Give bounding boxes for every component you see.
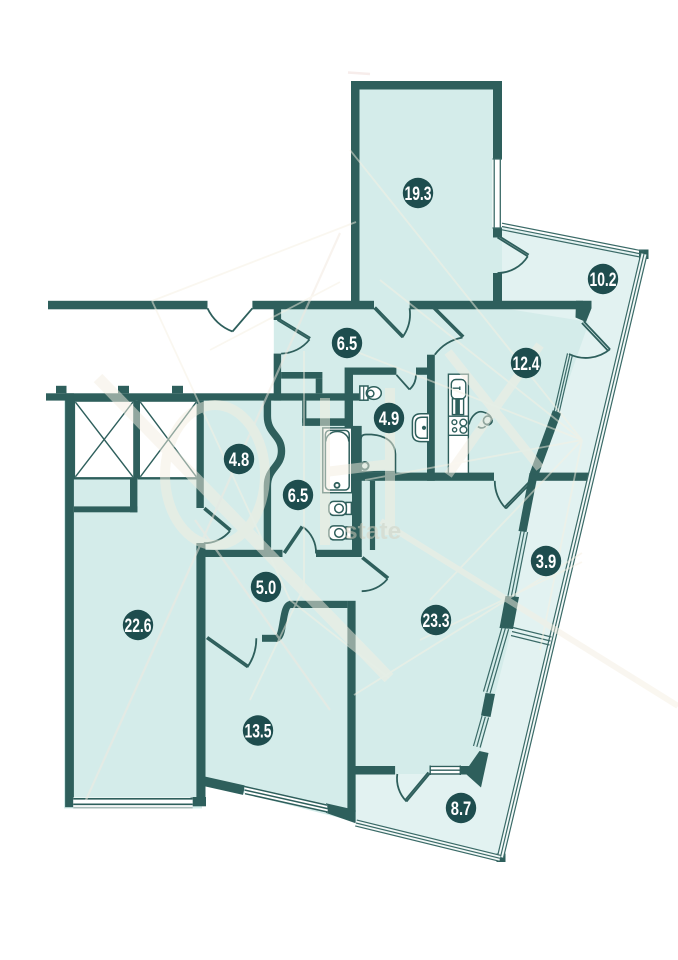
svg-text:10.2: 10.2	[590, 269, 617, 291]
svg-text:22.6: 22.6	[125, 615, 152, 637]
svg-text:23.3: 23.3	[423, 610, 450, 632]
svg-text:4.9: 4.9	[379, 408, 400, 430]
svg-text:13.5: 13.5	[245, 720, 272, 742]
svg-text:3.9: 3.9	[536, 551, 557, 573]
svg-text:6.5: 6.5	[337, 333, 358, 355]
svg-text:19.3: 19.3	[405, 183, 432, 205]
svg-text:12.4: 12.4	[513, 353, 540, 375]
svg-text:5.0: 5.0	[256, 577, 277, 599]
svg-text:4.8: 4.8	[229, 449, 250, 471]
svg-text:state: state	[344, 518, 401, 545]
svg-text:8.7: 8.7	[451, 798, 472, 820]
svg-text:6.5: 6.5	[288, 485, 309, 507]
